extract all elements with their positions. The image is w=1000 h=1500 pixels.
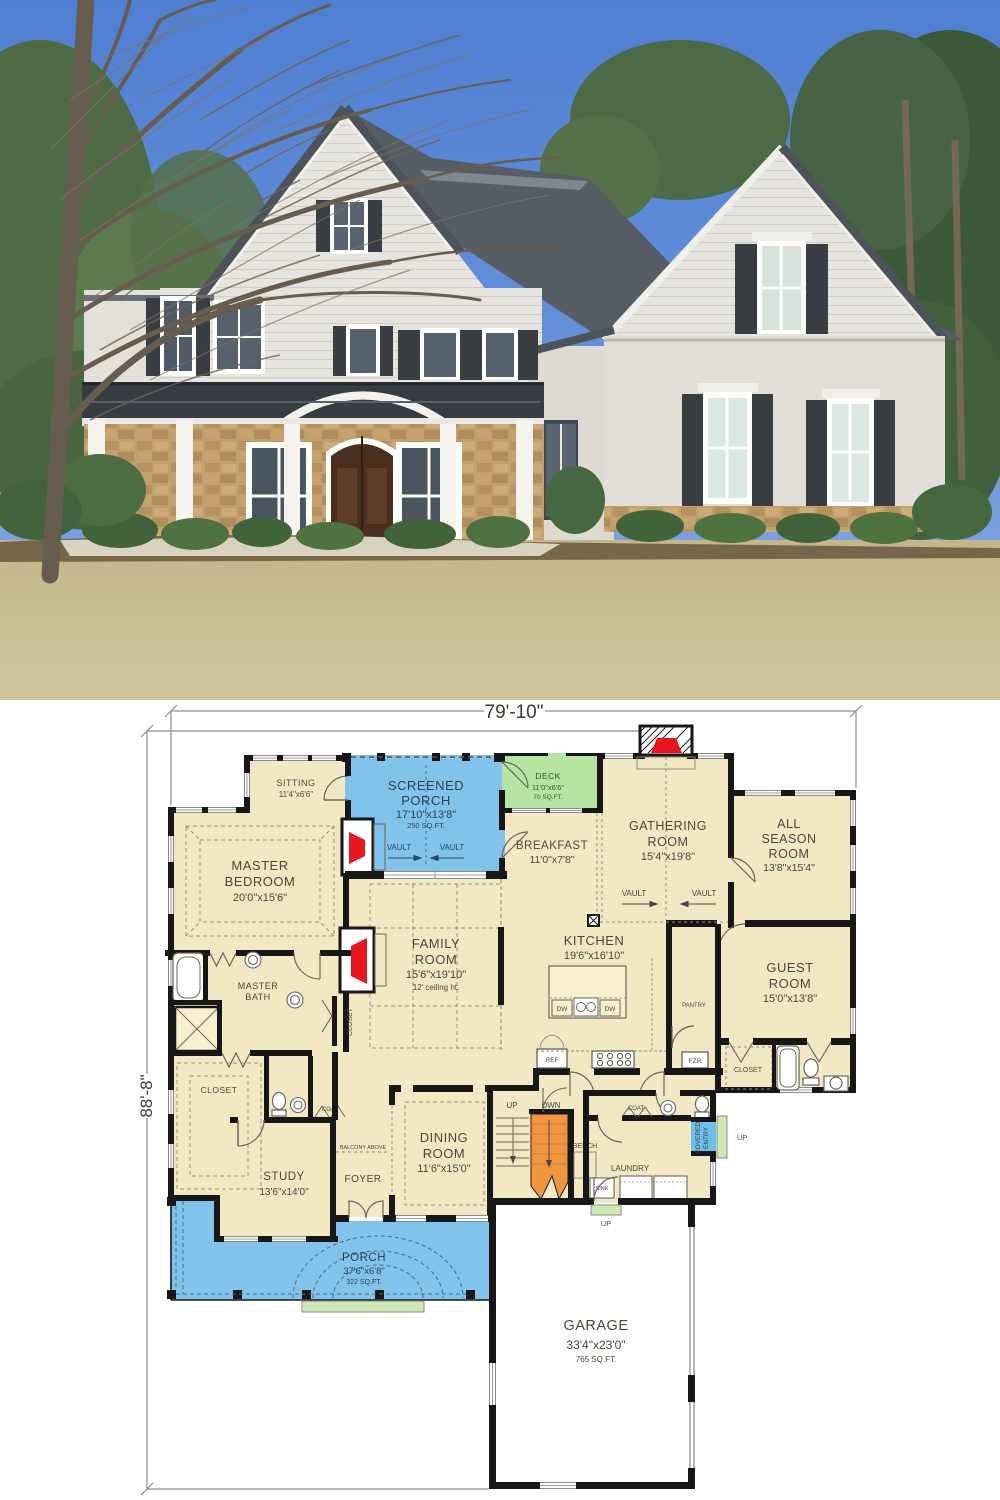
svg-text:BATH: BATH <box>245 992 270 1002</box>
svg-text:VAULT: VAULT <box>692 889 717 898</box>
svg-text:VAULT: VAULT <box>440 843 465 852</box>
svg-text:11'0"x7'8": 11'0"x7'8" <box>529 854 574 866</box>
svg-text:CLOSET: CLOSET <box>200 1085 237 1095</box>
svg-text:MASTER: MASTER <box>231 858 288 873</box>
svg-text:FOYER: FOYER <box>345 1174 382 1185</box>
svg-text:GUEST: GUEST <box>766 960 813 975</box>
svg-text:13'8"x15'4": 13'8"x15'4" <box>763 862 815 874</box>
svg-text:DW: DW <box>557 1006 569 1013</box>
svg-text:33'4"x23'0": 33'4"x23'0" <box>566 1338 625 1352</box>
svg-text:250 SQ.FT.: 250 SQ.FT. <box>407 821 445 830</box>
svg-text:15'4"x19'8": 15'4"x19'8" <box>641 851 695 863</box>
svg-text:ROOM: ROOM <box>415 952 457 967</box>
svg-text:FZR: FZR <box>689 1058 702 1065</box>
svg-text:DW: DW <box>605 1006 617 1013</box>
svg-text:BEDROOM: BEDROOM <box>225 874 296 889</box>
svg-text:LAUNDRY: LAUNDRY <box>611 1164 650 1173</box>
svg-text:VAULT: VAULT <box>622 889 647 898</box>
svg-text:11'6"x15'0": 11'6"x15'0" <box>417 1163 470 1175</box>
svg-text:COVERED: COVERED <box>695 1122 702 1154</box>
svg-text:11'4"x6'6": 11'4"x6'6" <box>279 790 314 799</box>
svg-text:19'6"x16'10": 19'6"x16'10" <box>564 950 624 962</box>
svg-text:37'6"x6'8": 37'6"x6'8" <box>343 1266 385 1277</box>
svg-text:ROOM: ROOM <box>648 835 689 849</box>
svg-text:322 SQ.FT.: 322 SQ.FT. <box>346 1279 381 1286</box>
svg-text:70 SQ.FT.: 70 SQ.FT. <box>533 794 562 801</box>
svg-text:REF: REF <box>546 1057 559 1064</box>
svg-text:ROOM: ROOM <box>769 976 811 991</box>
svg-text:88'-8": 88'-8" <box>137 1074 156 1117</box>
svg-text:765 SQ.FT.: 765 SQ.FT. <box>576 1355 616 1364</box>
svg-text:PANTRY: PANTRY <box>682 1003 706 1009</box>
svg-text:UP: UP <box>737 1133 747 1142</box>
svg-text:DINING: DINING <box>420 1130 469 1145</box>
svg-text:11'0"x6'6": 11'0"x6'6" <box>532 783 565 792</box>
svg-text:15'6"x19'10": 15'6"x19'10" <box>406 969 466 981</box>
svg-text:CLOSET: CLOSET <box>734 1067 763 1074</box>
svg-text:UP: UP <box>506 1101 517 1110</box>
svg-text:17'10"x13'8": 17'10"x13'8" <box>396 809 456 821</box>
svg-text:MASTER: MASTER <box>238 981 279 991</box>
svg-text:STUDY: STUDY <box>263 1171 304 1183</box>
svg-text:DECK: DECK <box>535 771 561 781</box>
svg-text:KITCHEN: KITCHEN <box>564 933 625 948</box>
svg-text:PORCH: PORCH <box>401 793 450 808</box>
svg-text:BALCONY ABOVE: BALCONY ABOVE <box>340 1145 387 1151</box>
svg-text:ROOM: ROOM <box>423 1146 465 1161</box>
svg-text:SITTING: SITTING <box>277 778 316 788</box>
svg-text:SCREENED: SCREENED <box>388 778 464 793</box>
svg-text:UP: UP <box>601 1219 611 1228</box>
svg-text:BREAKFAST: BREAKFAST <box>516 840 588 852</box>
svg-text:ROOM: ROOM <box>769 847 810 861</box>
svg-text:ALL: ALL <box>777 817 801 831</box>
svg-text:SEASON: SEASON <box>761 832 816 846</box>
svg-text:79'-10": 79'-10" <box>485 702 544 723</box>
svg-text:13'6"x14'0": 13'6"x14'0" <box>259 1187 309 1198</box>
svg-text:GATHERING: GATHERING <box>629 819 707 833</box>
svg-text:20'0"x15'6": 20'0"x15'6" <box>233 892 287 904</box>
svg-text:GARAGE: GARAGE <box>563 1318 628 1334</box>
svg-text:15'0"x13'8": 15'0"x13'8" <box>763 993 817 1005</box>
svg-text:CLOSET: CLOSET <box>347 1007 354 1036</box>
svg-text:VAULT: VAULT <box>387 843 412 852</box>
svg-text:12' ceiling ht.: 12' ceiling ht. <box>413 983 459 992</box>
svg-text:FAMILY: FAMILY <box>412 936 460 951</box>
svg-text:ENTRY: ENTRY <box>703 1126 710 1149</box>
svg-text:PORCH: PORCH <box>342 1252 386 1264</box>
